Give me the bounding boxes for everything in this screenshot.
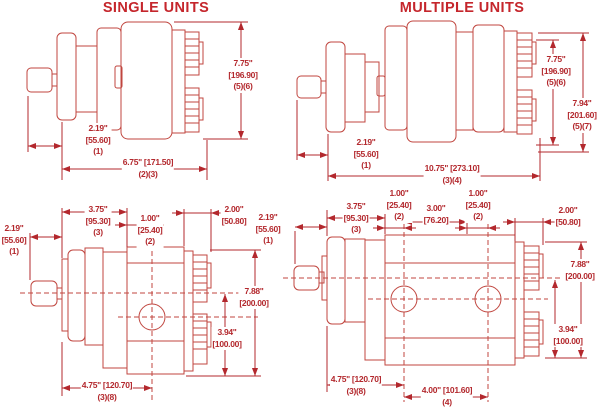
dim-mfront-flange-to-port: 3.75" [95.30] (3) <box>343 201 370 236</box>
port-fittings <box>185 32 203 132</box>
dim-single-height: 7.75" [196.90] (5)(6) <box>227 58 258 93</box>
port-fittings <box>193 255 211 364</box>
dim-multi-shaft: 2.19" [55.60] (1) <box>353 137 380 172</box>
dim-single-shaft: 2.19" [55.60] (1) <box>85 123 112 158</box>
dim-multi-height-b: 7.94" [201.60] (5)(7) <box>566 98 597 133</box>
dim-sfront-shaft: 2.19" [55.60] (1) <box>1 223 28 258</box>
single-front-drawing <box>20 243 258 402</box>
dim-sfront-height: 7.88" [200.00] <box>238 286 269 309</box>
dim-sfront-end-width: 2.00" [50.80] <box>221 204 248 227</box>
multiple-units-title: MULTIPLE UNITS <box>400 0 525 16</box>
multiple-front-dimension-lines <box>295 210 587 397</box>
dim-mfront-port-offset-1: 1.00" [25.40] (2) <box>386 188 413 223</box>
single-units-title: SINGLE UNITS <box>103 0 209 16</box>
dim-sfront-half-height: 3.94" [100.00] <box>211 327 242 350</box>
dim-sfront-mount-length: 4.75" [120.70] (3)(8) <box>81 380 133 403</box>
dim-mfront-mount-length: 4.75" [120.70] (3)(8) <box>330 374 382 397</box>
dim-mfront-port-offset-2: 1.00" [25.40] (2) <box>465 188 492 223</box>
port-fittings <box>517 33 536 134</box>
dim-multi-length: 10.75" [273.10] (3)(4) <box>424 163 481 186</box>
dim-mfront-half-height: 3.94" [100.00] <box>552 324 583 347</box>
multiple-side-drawing <box>297 21 536 142</box>
drawing-sheet: SINGLE UNITS MULTIPLE UNITS 7.75" [196.9… <box>0 0 600 407</box>
single-side-drawing <box>27 22 203 139</box>
dim-sfront-port-offset: 1.00" [25.40] (2) <box>137 213 164 248</box>
dim-sfront-flange-to-port: 3.75" [95.30] (3) <box>85 204 112 239</box>
dim-mfront-height: 7.88" [200.00] <box>564 259 595 282</box>
port-fittings <box>524 246 543 356</box>
multiple-front-drawing <box>283 224 560 402</box>
dim-mfront-end-width: 2.00" [50.80] <box>555 205 582 228</box>
dim-mfront-shaft: 2.19" [55.60] (1) <box>255 212 282 247</box>
dim-mfront-port-spacing: 3.00" [76.20] <box>423 203 450 226</box>
dim-mfront-section-spacing: 4.00" [101.60] (4) <box>421 385 473 407</box>
dim-single-length: 6.75" [171.50] (2)(3) <box>122 157 174 180</box>
dim-multi-height-a: 7.75" [196.90] (5)(6) <box>540 54 571 89</box>
